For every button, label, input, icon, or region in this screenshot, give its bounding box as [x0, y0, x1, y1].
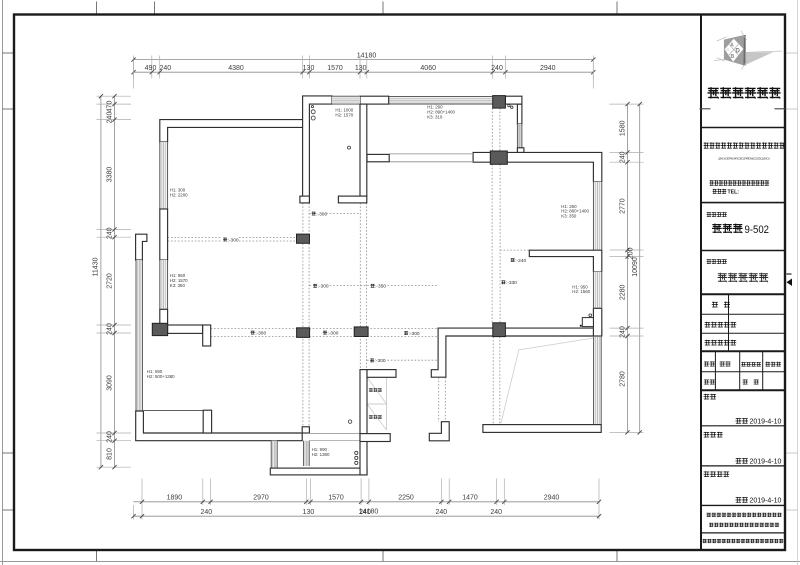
svg-text:240: 240: [435, 509, 447, 516]
svg-text:240: 240: [106, 431, 113, 443]
svg-text:240: 240: [620, 151, 627, 163]
svg-text:H2: 1380: H2: 1380: [312, 452, 330, 457]
svg-text:1570: 1570: [328, 495, 344, 502]
svg-text::-300: :-300: [328, 330, 339, 336]
svg-text:130: 130: [355, 65, 367, 72]
svg-text::-330: :-330: [506, 280, 517, 286]
svg-text::-350: :-350: [375, 284, 386, 290]
svg-text:130: 130: [303, 509, 315, 516]
svg-text:240: 240: [200, 509, 212, 516]
svg-text:TEL:: TEL:: [728, 189, 740, 195]
svg-text:2940: 2940: [544, 495, 560, 502]
svg-text:810: 810: [106, 448, 113, 460]
svg-text:2019-4-10: 2019-4-10: [750, 459, 782, 466]
svg-text:470: 470: [106, 101, 113, 113]
svg-text:1570: 1570: [327, 65, 343, 72]
svg-text:B: B: [731, 54, 735, 60]
svg-text:4380: 4380: [228, 65, 244, 72]
svg-text:2280: 2280: [620, 285, 627, 301]
svg-text:4060: 4060: [420, 65, 436, 72]
svg-text::-300: :-300: [255, 330, 266, 336]
svg-text:C: C: [726, 47, 729, 52]
svg-text:H2: 500+1380: H2: 500+1380: [147, 374, 175, 379]
svg-text:3380: 3380: [106, 167, 113, 183]
svg-text:H2: 2200: H2: 2200: [170, 192, 188, 197]
svg-text:H2: 1560: H2: 1560: [572, 289, 590, 294]
svg-text:2770: 2770: [620, 198, 627, 214]
svg-text:14180: 14180: [357, 52, 377, 59]
svg-text:2250: 2250: [398, 495, 414, 502]
svg-text:240: 240: [490, 509, 502, 516]
svg-text:QZHOU GETANG ARC DECORATION &: QZHOU GETANG ARC DECORATION & CO. LTD QU…: [718, 157, 770, 161]
svg-text:K3: 350: K3: 350: [561, 214, 577, 219]
svg-text:240: 240: [106, 112, 113, 124]
svg-text:2970: 2970: [253, 495, 269, 502]
svg-text::-300: :-300: [409, 331, 420, 337]
svg-text:2780: 2780: [620, 371, 627, 387]
svg-text:490: 490: [145, 65, 157, 72]
svg-text:240: 240: [159, 65, 171, 72]
svg-text:1580: 1580: [620, 120, 627, 136]
svg-text:1470: 1470: [462, 495, 478, 502]
svg-text:A: A: [730, 42, 734, 48]
svg-text::-300: :-300: [316, 211, 327, 217]
svg-text:200: 200: [628, 247, 635, 259]
svg-text::-300: :-300: [228, 237, 239, 243]
svg-text::-240: :-240: [515, 258, 526, 264]
svg-text:2940: 2940: [540, 65, 556, 72]
svg-text:D: D: [735, 48, 740, 55]
svg-text:K3: 350: K3: 350: [170, 283, 186, 288]
svg-text:2019-4-10: 2019-4-10: [750, 419, 782, 426]
svg-text::-300: :-300: [375, 358, 386, 364]
svg-text:11430: 11430: [93, 257, 100, 276]
svg-text:9-502: 9-502: [745, 224, 770, 236]
svg-text:240: 240: [491, 65, 503, 72]
svg-text:130: 130: [303, 65, 315, 72]
svg-text:K3: 310: K3: 310: [427, 114, 443, 119]
svg-text:2720: 2720: [106, 273, 113, 289]
svg-text:2019-4-10: 2019-4-10: [750, 498, 782, 505]
svg-text:240: 240: [620, 326, 627, 338]
svg-text:14180: 14180: [359, 509, 379, 516]
svg-text:H2: 1570: H2: 1570: [335, 112, 353, 117]
svg-text:240: 240: [106, 227, 113, 239]
svg-text:1890: 1890: [167, 495, 183, 502]
svg-text::-300: :-300: [318, 284, 329, 290]
svg-text:240: 240: [106, 323, 113, 335]
svg-text:3090: 3090: [106, 375, 113, 391]
